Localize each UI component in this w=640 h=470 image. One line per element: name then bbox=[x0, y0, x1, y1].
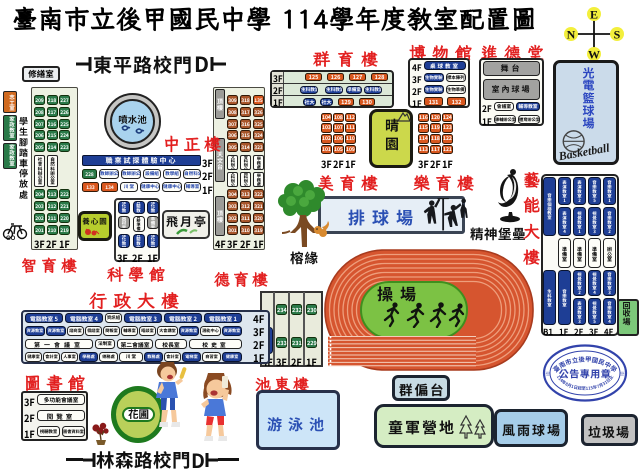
svg-text:S: S bbox=[614, 28, 621, 42]
svg-text:E: E bbox=[590, 8, 598, 22]
svg-text:N: N bbox=[567, 28, 576, 42]
svg-text:Basketball: Basketball bbox=[557, 140, 612, 163]
svg-text:※: ※ bbox=[545, 369, 551, 378]
svg-text:※: ※ bbox=[619, 369, 625, 378]
svg-text:GO: GO bbox=[6, 236, 16, 241]
svg-text:公告專用章: 公告專用章 bbox=[559, 366, 612, 381]
